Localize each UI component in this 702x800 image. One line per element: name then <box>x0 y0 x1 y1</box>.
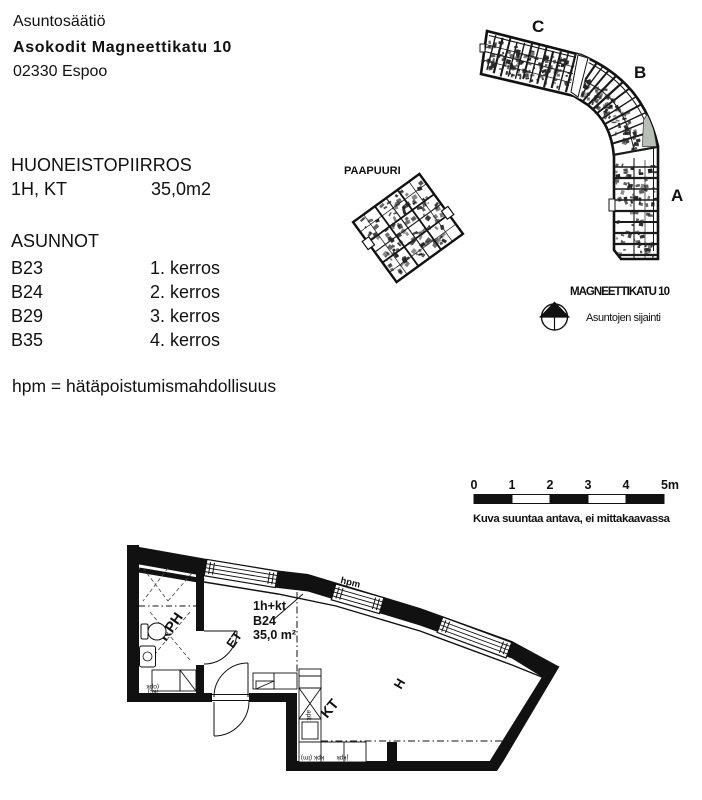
svg-text:KT: KT <box>318 696 343 721</box>
svg-text:PAAPUURI: PAAPUURI <box>344 165 401 177</box>
svg-text:ET: ET <box>223 628 245 650</box>
svg-text:A: A <box>671 186 683 205</box>
svg-text:C: C <box>532 17 544 36</box>
svg-text:0: 0 <box>471 478 478 492</box>
svg-text:1h+kt: 1h+kt <box>253 599 287 613</box>
svg-text:jkpk: jkpk <box>336 754 349 761</box>
svg-text:Asuntojen sijainti: Asuntojen sijainti <box>586 312 661 324</box>
svg-text:apk: apk <box>305 710 312 721</box>
svg-text:35,0 m²: 35,0 m² <box>253 628 296 642</box>
svg-text:MAGNEETTIKATU 10: MAGNEETTIKATU 10 <box>570 286 670 298</box>
svg-text:kpk (lm): kpk (lm) <box>301 754 324 761</box>
svg-text:5m: 5m <box>661 478 679 492</box>
svg-text:1: 1 <box>509 478 516 492</box>
svg-text:2: 2 <box>547 478 554 492</box>
svg-text:4: 4 <box>623 478 630 492</box>
svg-text:H: H <box>391 676 409 692</box>
svg-text:B24: B24 <box>253 614 276 628</box>
svg-text:Kuva suuntaa antava, ei mittak: Kuva suuntaa antava, ei mittakaavassa <box>473 513 671 525</box>
svg-text:B: B <box>634 63 646 82</box>
svg-text:/kc): /kc) <box>148 688 158 695</box>
svg-text:3: 3 <box>585 478 592 492</box>
